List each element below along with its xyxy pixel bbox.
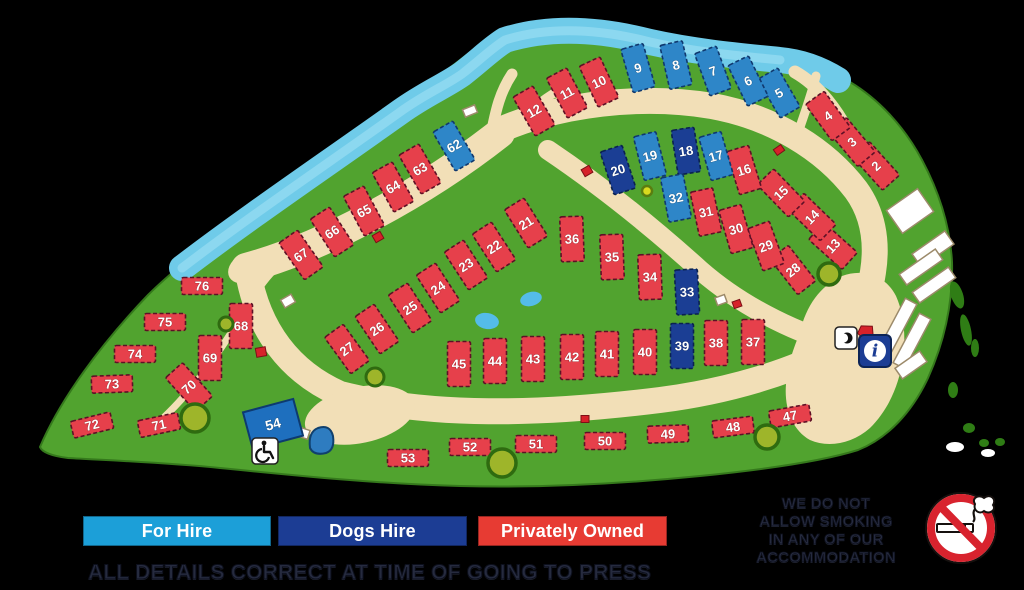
- tree-icon: [219, 317, 233, 331]
- svg-text:38: 38: [709, 336, 723, 351]
- pitch-37: 37: [742, 320, 765, 365]
- pitch-34: 34: [638, 254, 663, 300]
- pitch-51: 51: [516, 436, 557, 453]
- footer-note: ALL DETAILS CORRECT AT TIME OF GOING TO …: [88, 561, 688, 585]
- tree-icon: [488, 449, 516, 477]
- svg-text:71: 71: [150, 416, 167, 434]
- no-smoking-notice: WE DO NOT ALLOW SMOKING IN ANY OF OUR AC…: [736, 495, 916, 567]
- legend-for-hire: For Hire: [83, 516, 271, 546]
- pitch-49: 49: [647, 425, 689, 443]
- svg-text:45: 45: [452, 357, 466, 372]
- pitch-76: 76: [182, 278, 223, 295]
- svg-text:42: 42: [565, 350, 579, 365]
- svg-text:41: 41: [600, 347, 614, 362]
- svg-text:18: 18: [678, 142, 695, 159]
- svg-text:51: 51: [529, 437, 543, 452]
- svg-text:34: 34: [643, 269, 659, 285]
- pitch-35: 35: [600, 234, 625, 280]
- svg-text:49: 49: [661, 426, 676, 441]
- info-icon: i: [859, 335, 891, 367]
- pitch-69: 69: [199, 336, 222, 381]
- svg-text:52: 52: [463, 440, 477, 455]
- tree-icon: [818, 263, 840, 285]
- no-smoking-icon: [921, 490, 1001, 570]
- pitch-73: 73: [91, 375, 133, 393]
- svg-text:37: 37: [746, 335, 760, 350]
- tree-icon: [642, 186, 652, 196]
- legend-privately-owned: Privately Owned: [478, 516, 667, 546]
- pitch-75: 75: [145, 314, 186, 331]
- pitch-53: 53: [388, 450, 429, 467]
- pitch-50: 50: [585, 433, 626, 450]
- pitch-36: 36: [560, 216, 585, 262]
- svg-text:53: 53: [401, 451, 415, 466]
- svg-text:36: 36: [565, 231, 580, 246]
- edge-foliage: [946, 280, 1005, 457]
- svg-text:33: 33: [679, 284, 694, 300]
- pitch-42: 42: [561, 335, 584, 380]
- no-smoking-line: ALLOW SMOKING: [736, 513, 916, 531]
- svg-text:40: 40: [638, 345, 652, 360]
- pitch-52: 52: [450, 439, 491, 456]
- phone-icon: [835, 327, 857, 349]
- holiday-park-site-map-page: 2345678910111213141516171819202122232425…: [0, 0, 1024, 590]
- pitch-45: 45: [448, 342, 471, 387]
- svg-text:68: 68: [234, 319, 248, 334]
- smoke-cloud: [974, 496, 994, 512]
- utility-box: [255, 347, 266, 358]
- pitch-74: 74: [115, 346, 156, 363]
- tree-icon: [181, 404, 209, 432]
- svg-text:32: 32: [667, 189, 684, 206]
- pitch-40: 40: [634, 330, 657, 375]
- tree-icon: [366, 368, 384, 386]
- svg-text:i: i: [872, 342, 878, 362]
- pitch-41: 41: [596, 332, 619, 377]
- svg-text:43: 43: [526, 352, 540, 367]
- dinghy-icon: [310, 427, 334, 454]
- svg-text:50: 50: [598, 434, 612, 449]
- svg-text:44: 44: [488, 354, 503, 369]
- svg-text:48: 48: [725, 419, 741, 436]
- svg-text:35: 35: [605, 249, 620, 264]
- svg-text:47: 47: [782, 407, 799, 424]
- pitch-38: 38: [705, 321, 728, 366]
- no-smoking-line: WE DO NOT: [736, 495, 916, 513]
- svg-text:76: 76: [195, 279, 209, 294]
- pitch-39: 39: [671, 324, 694, 369]
- no-smoking-line: IN ANY OF OUR: [736, 531, 916, 549]
- utility-box: [581, 416, 589, 423]
- svg-text:74: 74: [128, 347, 143, 362]
- no-smoking-line: ACCOMMODATION: [736, 549, 916, 567]
- svg-text:69: 69: [203, 351, 217, 366]
- pitch-44: 44: [484, 339, 507, 384]
- svg-text:73: 73: [105, 376, 120, 391]
- svg-text:39: 39: [675, 339, 689, 354]
- svg-text:31: 31: [697, 203, 714, 221]
- pitch-33: 33: [674, 269, 699, 315]
- legend-dogs-hire: Dogs Hire: [278, 516, 467, 546]
- tree-icon: [755, 425, 779, 449]
- pitch-43: 43: [522, 337, 545, 382]
- smoke-trail: [973, 509, 975, 522]
- wheelchair-icon: [252, 438, 278, 464]
- svg-text:75: 75: [158, 315, 172, 330]
